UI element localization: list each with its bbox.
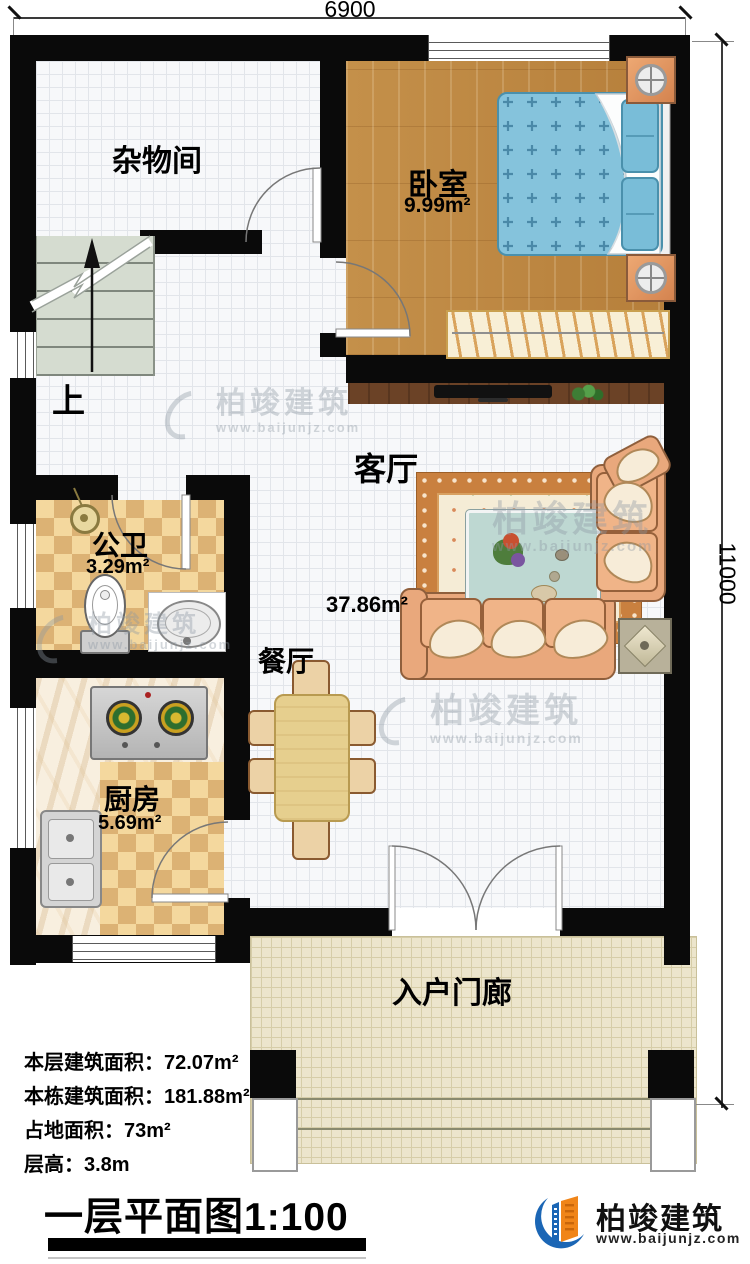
porch-pillar-right — [648, 1050, 694, 1098]
wall-storage-south — [140, 230, 262, 254]
dimension-extension — [13, 17, 14, 35]
title-underline-thin — [48, 1257, 366, 1259]
burner-icon — [158, 700, 194, 736]
wall-bathroom-east — [224, 475, 250, 650]
tv-icon — [434, 385, 552, 398]
floorplan-canvas: 6900 11000 上 — [0, 0, 750, 1264]
stat-label: 本栋建筑面积： — [24, 1086, 164, 1108]
lamp-finial-icon — [640, 641, 649, 650]
wall-bathroom-north — [36, 475, 118, 500]
right-dimension-value: 11000 — [714, 519, 741, 629]
dining-room-label: 餐厅 — [258, 640, 314, 680]
living-room-label: 客厅 — [354, 444, 418, 490]
stat-building-area: 本栋建筑面积：181.88m² — [24, 1080, 364, 1109]
stair-window — [10, 332, 36, 378]
stat-value: 73m² — [124, 1120, 171, 1142]
wall-living-south-right — [560, 908, 690, 936]
nightstand — [626, 254, 676, 302]
bed — [496, 90, 674, 260]
shower-head-center — [80, 514, 88, 522]
stove-knob — [154, 742, 160, 748]
title-underline — [48, 1238, 366, 1251]
stat-storey-height: 层高：3.8m — [24, 1148, 364, 1177]
stat-footprint: 占地面积：73m² — [24, 1114, 364, 1143]
stat-value: 181.88m² — [164, 1086, 250, 1108]
burner-icon — [106, 700, 142, 736]
dimension-extension — [685, 17, 686, 35]
wall-storage-bedroom — [320, 61, 346, 258]
wall-stub — [320, 333, 346, 357]
wall-bathroom-kitchen — [36, 650, 250, 678]
porch-label: 入户门廊 — [392, 968, 512, 1012]
stat-label: 层高： — [24, 1154, 84, 1176]
table-lamp-icon — [635, 262, 667, 294]
bedroom-area: 9.99m² — [404, 194, 471, 218]
wall-kitchen-east — [224, 678, 250, 820]
plan-title: 一层平面图1:100 — [44, 1186, 349, 1242]
stat-floor-area: 本层建筑面积：72.07m² — [24, 1046, 364, 1075]
kitchen-south-window — [72, 936, 216, 962]
flower-decor — [503, 533, 519, 549]
plant-icon — [570, 384, 604, 402]
nightstand — [626, 56, 676, 104]
brand-url: www.baijunjz.com — [596, 1230, 741, 1246]
vanity-counter — [148, 592, 226, 652]
bathroom-window — [10, 524, 36, 608]
dimension-extension — [692, 41, 734, 42]
side-table — [618, 618, 672, 674]
stat-label: 本层建筑面积： — [24, 1052, 164, 1074]
kitchen-area: 5.69m² — [98, 812, 161, 835]
wall-living-south-left — [250, 908, 392, 936]
bathroom-area: 3.29m² — [86, 556, 149, 579]
toilet-flush — [100, 590, 110, 600]
wall-tv — [346, 355, 664, 383]
wall-kitchen-east-stub — [224, 898, 250, 937]
living-room-area: 37.86m² — [326, 592, 408, 618]
table-decor — [555, 549, 569, 561]
top-dimension-value: 6900 — [300, 0, 400, 23]
stove — [90, 686, 208, 760]
stove-knob — [122, 742, 128, 748]
table-lamp-icon — [635, 64, 667, 96]
stat-value: 3.8m — [84, 1154, 130, 1176]
porch-pillar-base-right — [650, 1098, 696, 1172]
sink-drain — [66, 834, 74, 842]
bedroom-window — [428, 35, 610, 61]
bathroom-sink-inner — [165, 608, 211, 638]
sink-drain — [66, 878, 74, 886]
toilet-bowl — [84, 574, 126, 638]
stove-logo — [145, 692, 151, 698]
dining-table — [274, 694, 350, 822]
stat-value: 72.07m² — [164, 1052, 239, 1074]
staircase — [36, 236, 155, 376]
kitchen-sink — [40, 810, 102, 908]
table-decor — [549, 571, 560, 582]
wardrobe — [446, 310, 670, 359]
faucet-icon — [183, 637, 191, 645]
stat-label: 占地面积： — [24, 1120, 124, 1142]
wardrobe-rail — [452, 332, 664, 334]
flower-decor — [511, 553, 525, 567]
stairs-up-label: 上 — [52, 374, 85, 422]
tv-stand — [478, 398, 508, 402]
dimension-extension — [692, 1104, 734, 1105]
brand-logo-icon — [532, 1192, 588, 1252]
kitchen-west-window — [10, 708, 36, 848]
storage-room-label: 杂物间 — [112, 136, 202, 180]
